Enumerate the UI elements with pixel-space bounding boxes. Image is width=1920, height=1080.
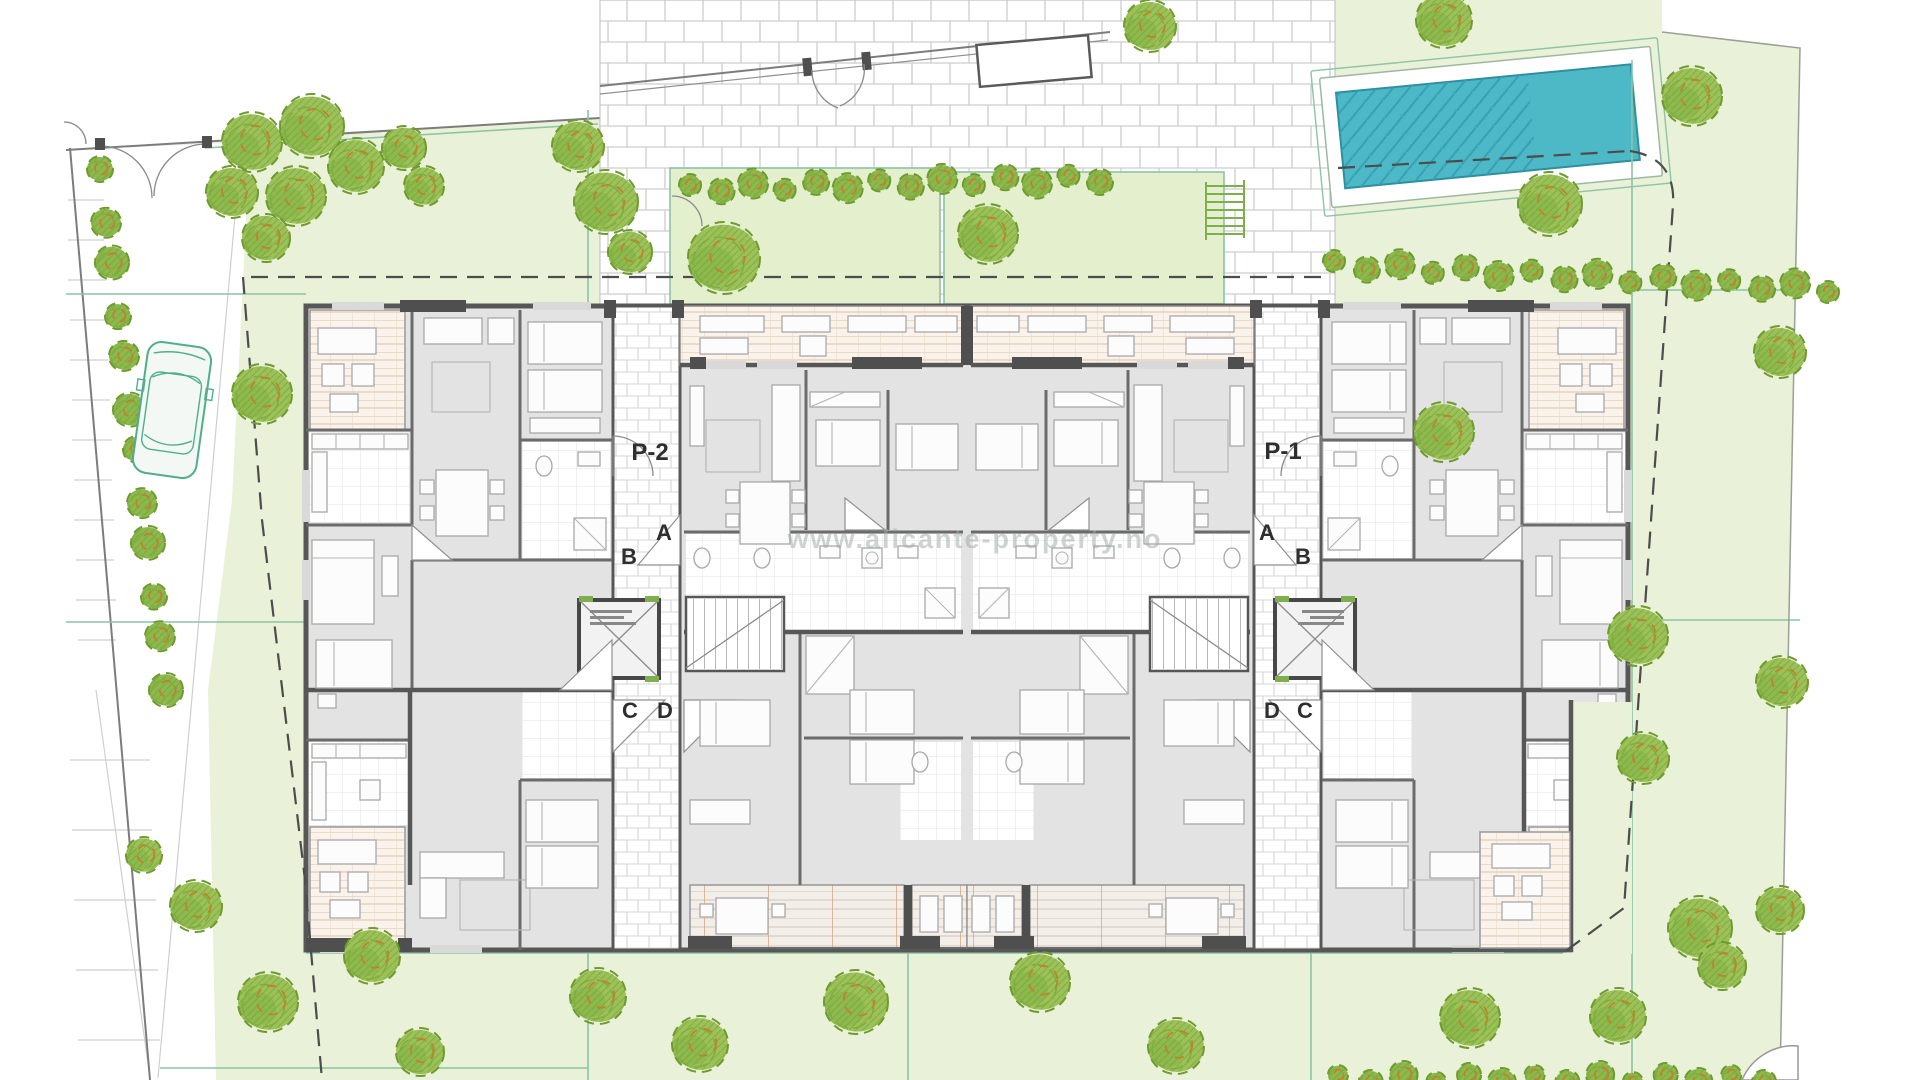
watermark-text: www.alicante-property.no [786,524,1162,554]
door-label-c-left: C [622,698,638,723]
portal-label-p1: P-1 [1264,438,1301,465]
door-label-a-right: A [1259,520,1275,545]
bush-icon [1815,280,1841,304]
door-label-b-right: B [1295,544,1311,569]
step-patch [1571,702,1632,954]
plaza-shed [976,35,1091,87]
door-label-c-right: C [1297,698,1313,723]
door-label-d-left: D [657,698,673,723]
site-plan-drawing: P-2 P-1 A B C D A B D C www.alicante-pro… [0,0,1920,1080]
door-label-b-left: B [621,544,637,569]
apartment-building [302,300,1632,954]
site-plan-page: P-2 P-1 A B C D A B D C www.alicante-pro… [0,0,1920,1080]
door-label-d-right: D [1264,698,1280,723]
door-label-a-left: A [656,520,672,545]
portal-label-p2: P-2 [631,439,668,466]
